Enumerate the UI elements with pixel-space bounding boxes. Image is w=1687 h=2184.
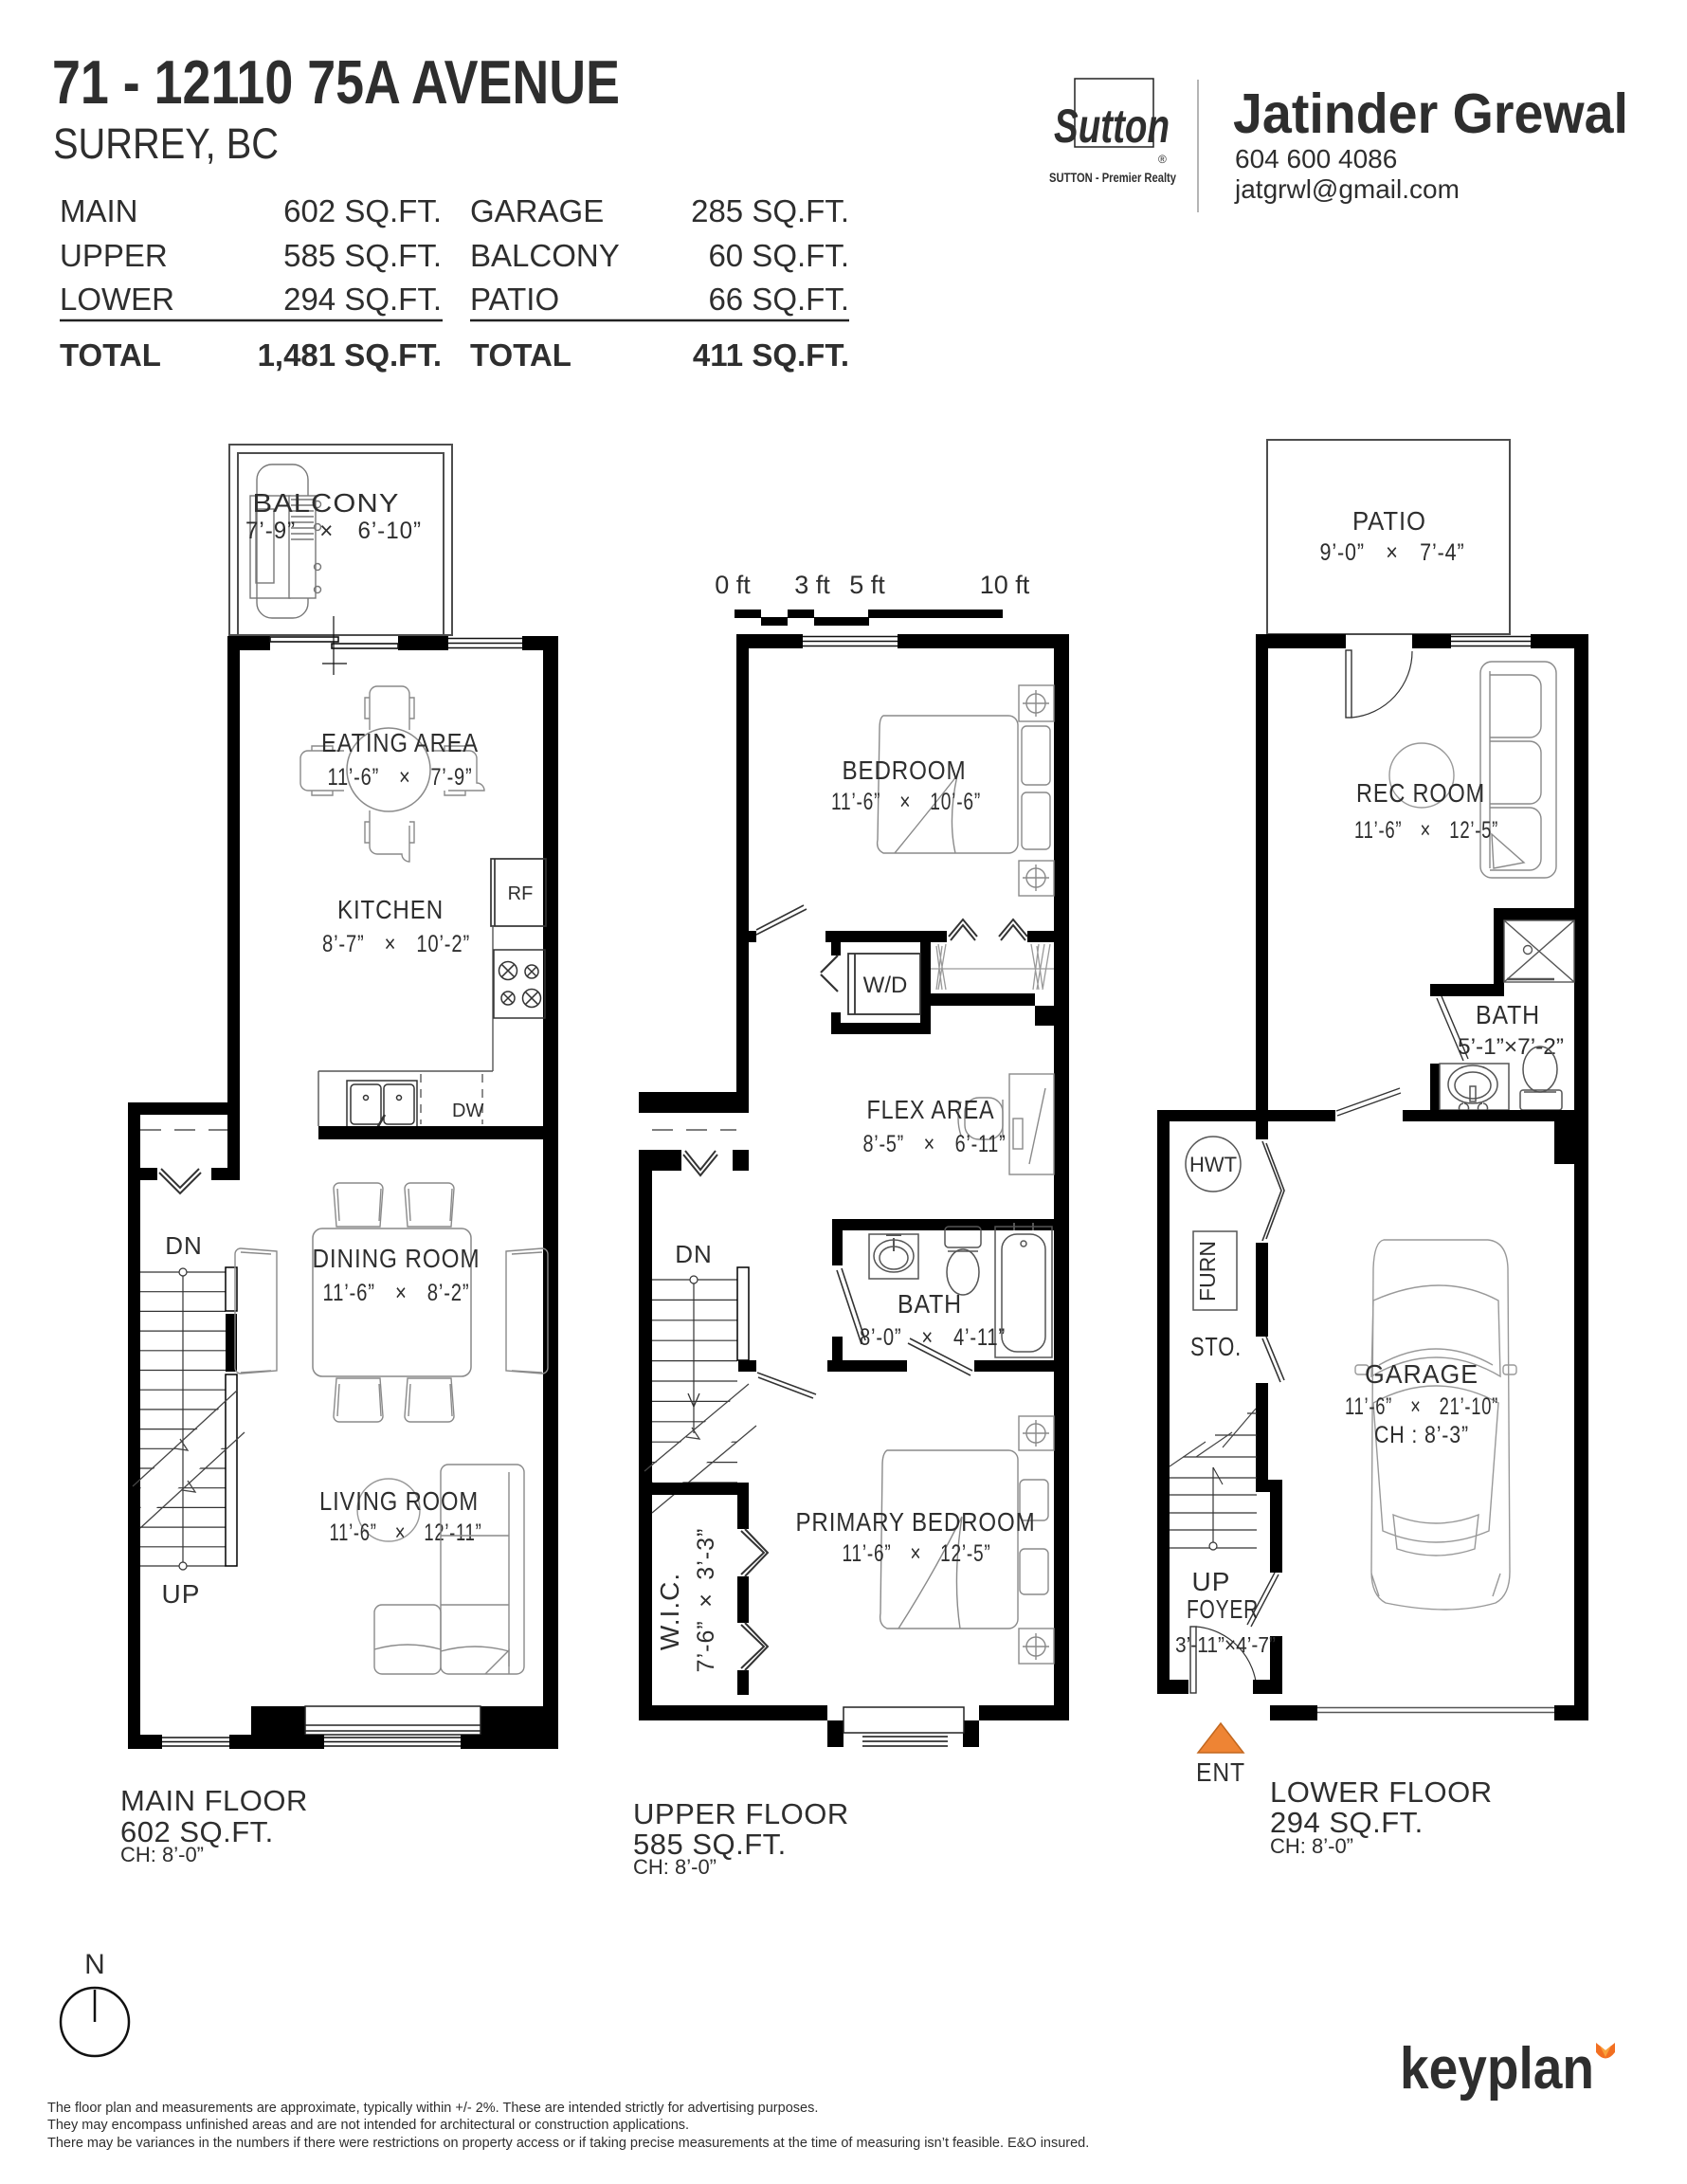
svg-text:411 SQ.FT.: 411 SQ.FT. <box>693 337 849 373</box>
svg-text:They may encompass unfinished: They may encompass unfinished areas and … <box>47 2118 689 2133</box>
svg-text:UP: UP <box>162 1579 201 1609</box>
svg-text:REC ROOM: REC ROOM <box>1356 778 1485 808</box>
svg-text:0 ft: 0 ft <box>715 571 751 599</box>
svg-text:BATH: BATH <box>898 1289 962 1319</box>
svg-text:SUTTON - Premier Realty: SUTTON - Premier Realty <box>1049 171 1176 185</box>
svg-text:602 SQ.FT.: 602 SQ.FT. <box>283 193 442 228</box>
svg-text:W.I.C.: W.I.C. <box>655 1573 684 1650</box>
svg-text:KITCHEN: KITCHEN <box>337 895 444 924</box>
svg-text:W/D: W/D <box>863 973 908 998</box>
svg-text:RF: RF <box>508 883 534 904</box>
svg-text:5’-1”×7’-2”: 5’-1”×7’-2” <box>1458 1034 1564 1060</box>
svg-text:LIVING ROOM: LIVING ROOM <box>319 1486 479 1516</box>
svg-text:GARAGE: GARAGE <box>1365 1359 1478 1389</box>
svg-text:FOYER: FOYER <box>1187 1594 1259 1624</box>
svg-text:7’-9” × 6’-10”: 7’-9” × 6’-10” <box>245 518 422 544</box>
svg-text:TOTAL: TOTAL <box>470 337 571 373</box>
svg-text:FURN: FURN <box>1195 1241 1220 1301</box>
svg-text:PATIO: PATIO <box>470 282 559 317</box>
svg-text:11’-6” × 12’-11”: 11’-6” × 12’-11” <box>330 1520 482 1546</box>
svg-text:Jatinder Grewal: Jatinder Grewal <box>1233 82 1628 145</box>
svg-text:®: ® <box>1158 153 1167 166</box>
svg-text:N: N <box>84 1949 105 1980</box>
svg-text:7’-6” × 3’-3”: 7’-6” × 3’-3” <box>693 1528 719 1673</box>
svg-text:BALCONY: BALCONY <box>470 238 620 273</box>
svg-text:5 ft: 5 ft <box>849 571 885 599</box>
svg-text:UPPER FLOOR: UPPER FLOOR <box>633 1797 849 1830</box>
svg-text:MAIN FLOOR: MAIN FLOOR <box>120 1784 308 1817</box>
svg-text:EATING AREA: EATING AREA <box>321 728 479 757</box>
svg-text:3 ft: 3 ft <box>794 571 830 599</box>
svg-text:BEDROOM: BEDROOM <box>843 755 967 785</box>
svg-text:66 SQ.FT.: 66 SQ.FT. <box>708 282 849 317</box>
svg-text:11’-6” × 12’-5”: 11’-6” × 12’-5” <box>1354 817 1498 844</box>
svg-text:DN: DN <box>165 1231 203 1260</box>
svg-text:CH : 8’-3”: CH : 8’-3” <box>1374 1422 1469 1448</box>
svg-text:11’-6” × 12’-5”: 11’-6” × 12’-5” <box>843 1540 991 1567</box>
svg-text:11’-6” × 8’-2”: 11’-6” × 8’-2” <box>323 1280 470 1306</box>
svg-text:PRIMARY BEDROOM: PRIMARY BEDROOM <box>796 1507 1036 1537</box>
svg-text:ENT: ENT <box>1196 1757 1245 1787</box>
svg-text:8’-7” × 10’-2”: 8’-7” × 10’-2” <box>322 931 470 957</box>
svg-text:STO.: STO. <box>1190 1332 1242 1361</box>
svg-text:11’-6” × 7’-9”: 11’-6” × 7’-9” <box>328 764 473 791</box>
svg-text:71 - 12110 75A AVENUE: 71 - 12110 75A AVENUE <box>52 47 620 117</box>
svg-text:1,481 SQ.FT.: 1,481 SQ.FT. <box>258 337 442 373</box>
svg-text:MAIN: MAIN <box>60 193 138 228</box>
svg-text:BALCONY: BALCONY <box>253 488 400 518</box>
svg-text:9’-0” × 7’-4”: 9’-0” × 7’-4” <box>1320 539 1465 566</box>
svg-text:GARAGE: GARAGE <box>470 193 604 228</box>
svg-text:LOWER: LOWER <box>60 282 174 317</box>
svg-text:604 600 4086: 604 600 4086 <box>1235 144 1397 173</box>
svg-text:TOTAL: TOTAL <box>60 337 161 373</box>
svg-text:PATIO: PATIO <box>1352 506 1426 536</box>
svg-text:jatgrwl@gmail.com: jatgrwl@gmail.com <box>1234 174 1460 204</box>
svg-text:There may be variances in the: There may be variances in the numbers if… <box>47 2136 1089 2151</box>
svg-text:keyplan: keyplan <box>1400 2036 1594 2102</box>
svg-text:UPPER: UPPER <box>60 238 168 273</box>
svg-text:BATH: BATH <box>1476 1000 1540 1029</box>
svg-text:DINING ROOM: DINING ROOM <box>313 1244 481 1273</box>
svg-text:CH: 8’-0”: CH: 8’-0” <box>1270 1834 1353 1858</box>
svg-text:11’-6” × 10’-6”: 11’-6” × 10’-6” <box>831 789 981 815</box>
svg-text:8’-5” × 6’-11”: 8’-5” × 6’-11” <box>863 1131 1007 1157</box>
svg-text:10 ft: 10 ft <box>980 571 1030 599</box>
svg-text:SURREY, BC: SURREY, BC <box>53 119 279 168</box>
svg-text:FLEX AREA: FLEX AREA <box>867 1095 995 1124</box>
svg-text:LOWER FLOOR: LOWER FLOOR <box>1270 1775 1493 1809</box>
svg-text:294 SQ.FT.: 294 SQ.FT. <box>283 282 442 317</box>
svg-text:DW: DW <box>452 1101 483 1121</box>
svg-text:CH: 8’-0”: CH: 8’-0” <box>120 1843 204 1866</box>
svg-text:8’-0” × 4’-11”: 8’-0” × 4’-11” <box>860 1324 1006 1351</box>
svg-text:UP: UP <box>1192 1567 1231 1596</box>
svg-text:CH: 8’-0”: CH: 8’-0” <box>633 1855 717 1879</box>
svg-text:HWT: HWT <box>1189 1153 1237 1176</box>
svg-text:60 SQ.FT.: 60 SQ.FT. <box>708 238 849 273</box>
svg-text:Sutton: Sutton <box>1054 100 1170 153</box>
svg-text:The floor plan and measurement: The floor plan and measurements are appr… <box>47 2101 818 2116</box>
svg-text:11’-6” × 21’-10”: 11’-6” × 21’-10” <box>1345 1393 1498 1420</box>
svg-text:DN: DN <box>675 1240 713 1268</box>
svg-text:585 SQ.FT.: 585 SQ.FT. <box>283 238 442 273</box>
svg-text:285 SQ.FT.: 285 SQ.FT. <box>691 193 849 228</box>
